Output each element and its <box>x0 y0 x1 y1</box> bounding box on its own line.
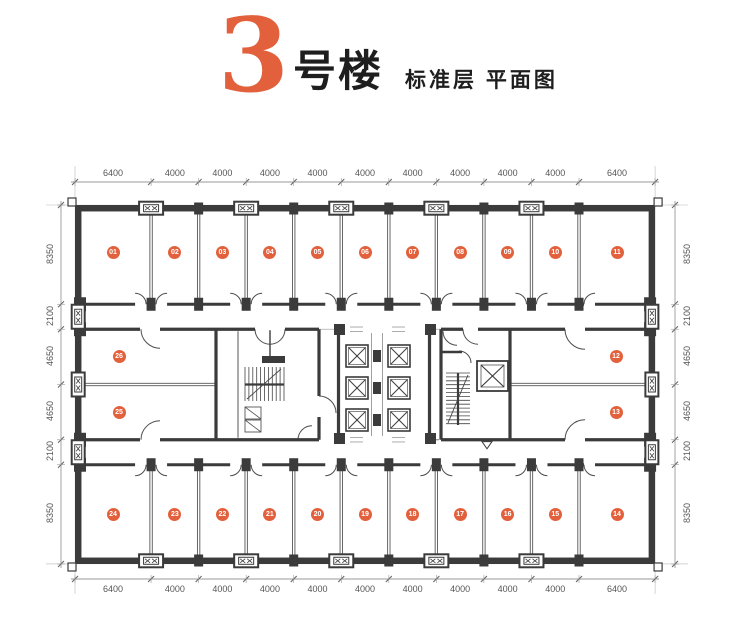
window-vent-icon <box>519 202 543 215</box>
window-vent-icon <box>139 554 163 567</box>
floor-plan-drawing <box>0 0 740 627</box>
window-vent-icon <box>645 305 658 329</box>
stairwell-right <box>441 352 470 425</box>
window-vent-icon <box>645 440 658 464</box>
window-vent-icon <box>519 554 543 567</box>
window-vent-icon <box>424 202 448 215</box>
window-vent-icon <box>72 305 85 329</box>
window-vent-icon <box>329 554 353 567</box>
window-vent-icon <box>72 372 85 396</box>
window-vent-icon <box>329 202 353 215</box>
window-vent-icon <box>139 202 163 215</box>
window-vent-icon <box>234 554 258 567</box>
elevator-bank <box>346 333 410 436</box>
service-elevator <box>477 361 508 391</box>
floor-plan-page: 3 号楼 标准层 平面图 010203040506070809101124232… <box>0 0 740 627</box>
window-vent-icon <box>645 372 658 396</box>
stairwell-left <box>238 331 285 438</box>
window-vent-icon <box>234 202 258 215</box>
window-vent-icon <box>424 554 448 567</box>
window-vent-icon <box>72 440 85 464</box>
